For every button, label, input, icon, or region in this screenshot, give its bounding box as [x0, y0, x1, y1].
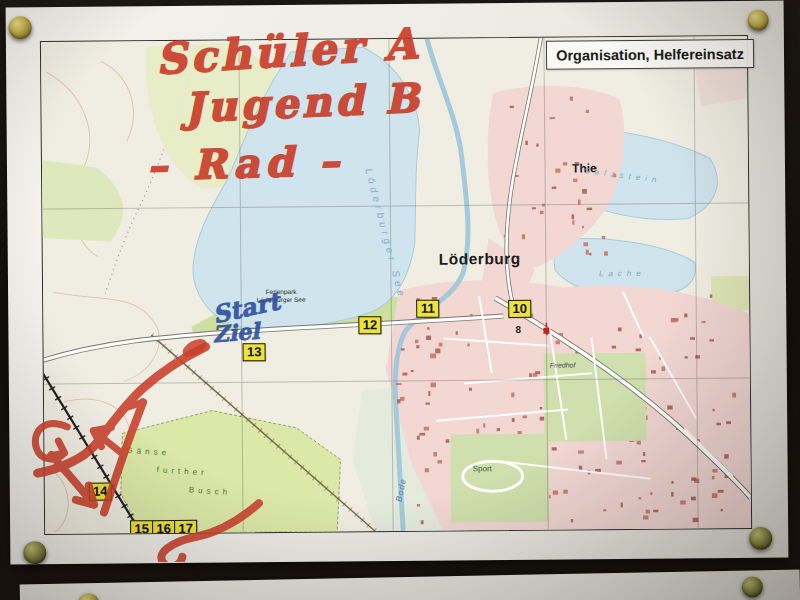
push-pin-icon-bottom-left	[23, 541, 46, 564]
pinned-map-sheet: Löderburg Thie Ferienpark Löderburger Se…	[6, 1, 789, 565]
label-lache: Lache	[599, 269, 646, 278]
push-pin-icon-top-left	[9, 16, 32, 39]
push-pin-icon-bottom-right	[749, 527, 772, 550]
checkpoint-marker-14: 14	[89, 482, 112, 500]
push-pin-icon-sheet2-right	[742, 576, 763, 597]
checkpoint-marker-11: 11	[416, 300, 439, 318]
checkpoint-marker-10: 10	[508, 300, 531, 318]
push-pin-icon-top-right	[748, 10, 769, 31]
checkpoint-marker-15: 15	[130, 520, 153, 535]
handwriting-ziel: Ziel	[211, 318, 260, 348]
checkpoint-marker-13: 13	[243, 343, 266, 361]
label-friedhof: Friedhof	[550, 361, 576, 368]
label-road-number: 8	[515, 324, 521, 335]
label-loederburg: Löderburg	[439, 250, 521, 269]
checkpoint-marker-12: 12	[358, 316, 381, 334]
second-sheet-bottom	[20, 570, 800, 600]
handwriting-rad: – Rad –	[146, 137, 345, 189]
sport-area	[450, 434, 549, 523]
photo-of-pinned-map: { "title_box": { "text": "Organisation, …	[0, 0, 800, 600]
checkpoint-marker-17: 17	[174, 520, 197, 535]
label-sport: Sport	[473, 464, 492, 473]
push-pin-icon-sheet2-left	[78, 593, 99, 600]
checkpoint-marker-16: 16	[152, 520, 175, 535]
title-box: Organisation, Helfereinsatz	[546, 39, 754, 70]
